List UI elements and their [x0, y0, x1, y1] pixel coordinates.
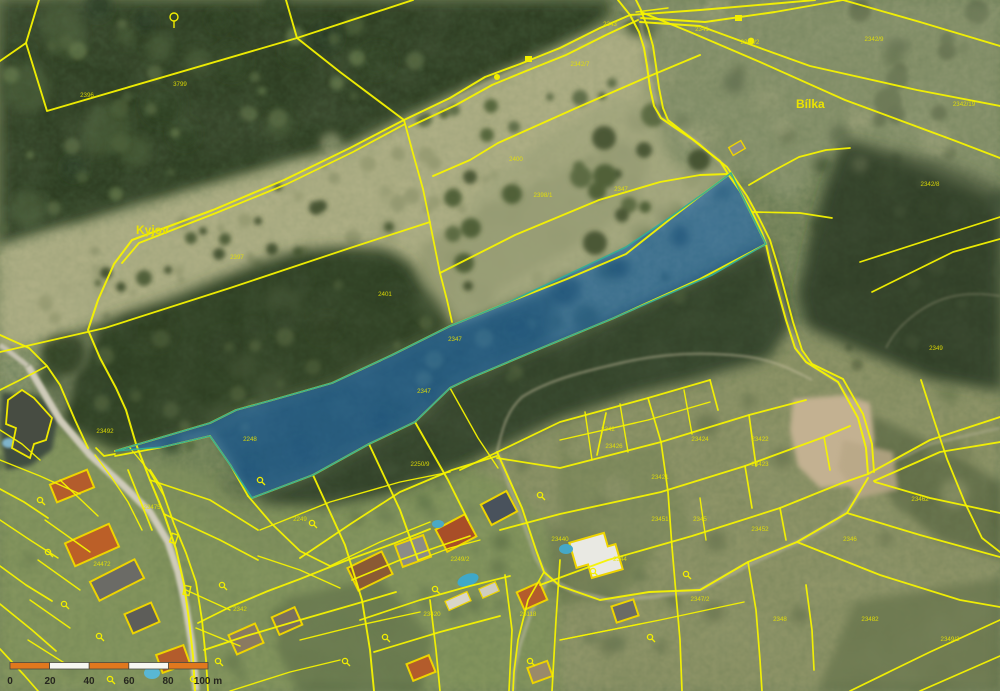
svg-text:100 m: 100 m	[194, 676, 222, 687]
svg-text:25118: 25118	[520, 611, 537, 618]
svg-text:2349: 2349	[929, 345, 943, 352]
svg-text:23482: 23482	[861, 616, 879, 623]
svg-text:23426: 23426	[605, 443, 623, 450]
svg-text:2347: 2347	[417, 388, 431, 395]
svg-text:24472: 24472	[93, 561, 111, 568]
svg-text:2397: 2397	[230, 254, 244, 261]
svg-text:2344: 2344	[613, 556, 627, 563]
svg-text:2345: 2345	[693, 516, 707, 523]
svg-text:23475: 23475	[143, 504, 161, 511]
svg-text:23424: 23424	[691, 436, 709, 443]
svg-text:Bílka: Bílka	[796, 97, 825, 111]
svg-text:3799: 3799	[173, 81, 187, 88]
svg-text:23462: 23462	[911, 496, 929, 503]
svg-text:2250/9: 2250/9	[411, 461, 430, 468]
svg-text:20: 20	[44, 676, 56, 687]
svg-text:2401: 2401	[378, 291, 392, 298]
svg-text:23452: 23452	[751, 526, 769, 533]
svg-text:2348: 2348	[773, 616, 787, 623]
svg-text:2249: 2249	[293, 516, 307, 523]
svg-text:2343: 2343	[603, 21, 617, 28]
svg-text:2342/9: 2342/9	[865, 36, 884, 43]
svg-text:23422: 23422	[751, 436, 769, 443]
svg-text:2342/8: 2342/8	[921, 181, 940, 188]
svg-text:0: 0	[7, 676, 13, 687]
svg-text:23492: 23492	[96, 428, 114, 435]
svg-text:2342/7: 2342/7	[571, 61, 590, 68]
svg-text:2347: 2347	[448, 336, 462, 343]
svg-text:2398/1: 2398/1	[534, 192, 553, 199]
svg-text:2340/2: 2340/2	[741, 39, 760, 46]
svg-text:2347: 2347	[614, 186, 628, 193]
svg-text:2349/2: 2349/2	[941, 636, 960, 643]
svg-text:2400: 2400	[509, 156, 523, 163]
svg-text:2396: 2396	[80, 92, 94, 99]
svg-text:2346: 2346	[843, 536, 857, 543]
svg-text:23440: 23440	[551, 536, 569, 543]
svg-text:2347/2: 2347/2	[691, 596, 710, 603]
svg-text:23451: 23451	[651, 516, 669, 523]
svg-text:2342: 2342	[233, 606, 247, 613]
svg-text:Kyjov: Kyjov	[136, 223, 169, 237]
svg-text:2341: 2341	[695, 26, 709, 33]
svg-text:23423: 23423	[751, 461, 769, 468]
svg-text:2249/2: 2249/2	[451, 556, 470, 563]
svg-text:2248: 2248	[243, 436, 257, 443]
svg-text:80: 80	[162, 676, 174, 687]
svg-text:23420: 23420	[423, 611, 441, 618]
svg-text:2342: 2342	[601, 426, 615, 433]
svg-text:2342/19: 2342/19	[953, 101, 976, 108]
svg-text:23421: 23421	[651, 474, 669, 481]
svg-text:40: 40	[83, 676, 95, 687]
svg-text:60: 60	[123, 676, 135, 687]
